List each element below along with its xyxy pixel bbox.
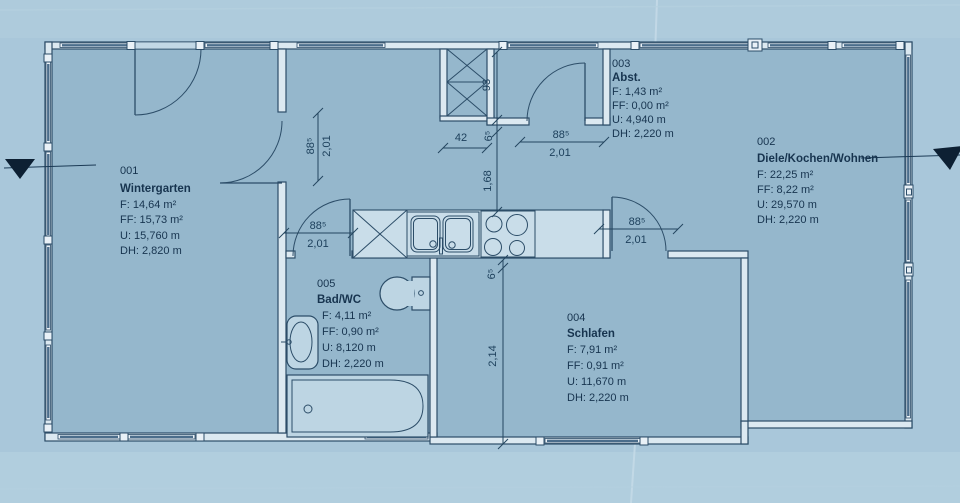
wall-wintergarten-upper: [278, 49, 286, 112]
post: [828, 42, 836, 50]
dim-text: 88⁵: [629, 216, 646, 228]
wall-schlafen-right: [741, 258, 748, 421]
bathtub: [287, 375, 428, 437]
post: [640, 437, 648, 445]
room-ff: FF: 15,73 m²: [120, 214, 183, 226]
dim-text: 88⁵: [553, 129, 570, 141]
post: [896, 42, 904, 50]
dim-text: 42: [455, 132, 467, 144]
room-id: 004: [567, 312, 585, 324]
wall-abst-right: [603, 49, 610, 125]
post: [120, 433, 128, 441]
room-u: U: 11,670 m: [567, 376, 626, 388]
dim-text: 2,01: [321, 135, 333, 156]
dim-text: 2,01: [307, 238, 328, 250]
room-area: F: 1,43 m²: [612, 86, 662, 98]
post-inner: [907, 189, 912, 195]
room-id: 005: [317, 278, 335, 290]
post: [44, 54, 52, 62]
floor-plan-svg: 88⁵ 2,01 88⁵ 2,01 93 6⁵ 1,68 42 88⁵ 2,01…: [0, 0, 960, 503]
wall-bottom-step: [741, 421, 748, 444]
post: [127, 42, 135, 50]
post-inner: [907, 267, 912, 273]
dim-text: 2,01: [625, 234, 646, 246]
room-ff: FF: 0,00 m²: [612, 100, 669, 112]
wall-exterior-bottom-right: [741, 421, 912, 428]
dim-text: 6⁵: [486, 269, 498, 280]
post: [631, 42, 639, 50]
wall-closet-left: [440, 49, 447, 118]
room-ff: FF: 0,90 m²: [322, 326, 379, 338]
toilet-join: [405, 281, 414, 306]
room-area: F: 14,64 m²: [120, 199, 177, 211]
dim-text: 88⁵: [310, 220, 327, 232]
dim-text: 2,01: [549, 147, 570, 159]
room-area: F: 4,11 m²: [322, 310, 372, 322]
room-u: U: 4,940 m: [612, 114, 666, 126]
post: [196, 42, 204, 50]
dim-text: 93: [481, 79, 493, 91]
wall-hall-right: [668, 251, 748, 258]
room-u: U: 29,570 m: [757, 199, 817, 211]
wall-closet-bottom: [440, 116, 494, 121]
paper-margin-bottom: [0, 452, 960, 503]
wall-wintergarten-lower: [278, 182, 286, 433]
room-area: F: 7,91 m²: [567, 344, 617, 356]
room-ff: FF: 0,91 m²: [567, 360, 624, 372]
wall-kitchen-end: [603, 210, 610, 258]
door-threshold-top: [134, 42, 202, 49]
post-inner: [752, 42, 758, 48]
room-id: 002: [757, 136, 775, 148]
post: [44, 143, 52, 151]
room-name: Bad/WC: [317, 294, 361, 306]
room-name: Schlafen: [567, 328, 615, 340]
room-u: U: 15,760 m: [120, 230, 180, 242]
post: [536, 437, 544, 445]
dim-text: 1,68: [482, 170, 494, 191]
room-area: F: 22,25 m²: [757, 169, 814, 181]
counter-outline: [353, 210, 603, 258]
post: [44, 332, 52, 340]
post: [270, 42, 278, 50]
room-ff: FF: 8,22 m²: [757, 184, 814, 196]
room-id: 003: [612, 58, 630, 70]
dim-text: 2,14: [487, 345, 499, 366]
wall-hall-bad-left: [286, 251, 295, 258]
post: [44, 236, 52, 244]
post: [196, 433, 204, 441]
room-name: Abst.: [612, 72, 641, 84]
room-dh: DH: 2,220 m: [757, 214, 819, 226]
kitchen-counter: [353, 210, 603, 258]
room-name: Diele/Kochen/Wohnen: [757, 153, 878, 165]
toilet-tank: [412, 277, 430, 310]
room-u: U: 8,120 m: [322, 342, 376, 354]
room-name: Wintergarten: [120, 183, 191, 195]
dim-text: 88⁵: [305, 138, 317, 155]
room-dh: DH: 2,220 m: [322, 358, 384, 370]
room-dh: DH: 2,820 m: [120, 245, 182, 257]
dim-text: 6⁵: [483, 131, 495, 142]
post: [44, 424, 52, 432]
room-dh: DH: 2,220 m: [612, 128, 674, 140]
room-id: 001: [120, 165, 138, 177]
floor-plan-scan: 88⁵ 2,01 88⁵ 2,01 93 6⁵ 1,68 42 88⁵ 2,01…: [0, 0, 960, 503]
wall-bad-schlafen: [430, 258, 437, 437]
room-dh: DH: 2,220 m: [567, 392, 629, 404]
